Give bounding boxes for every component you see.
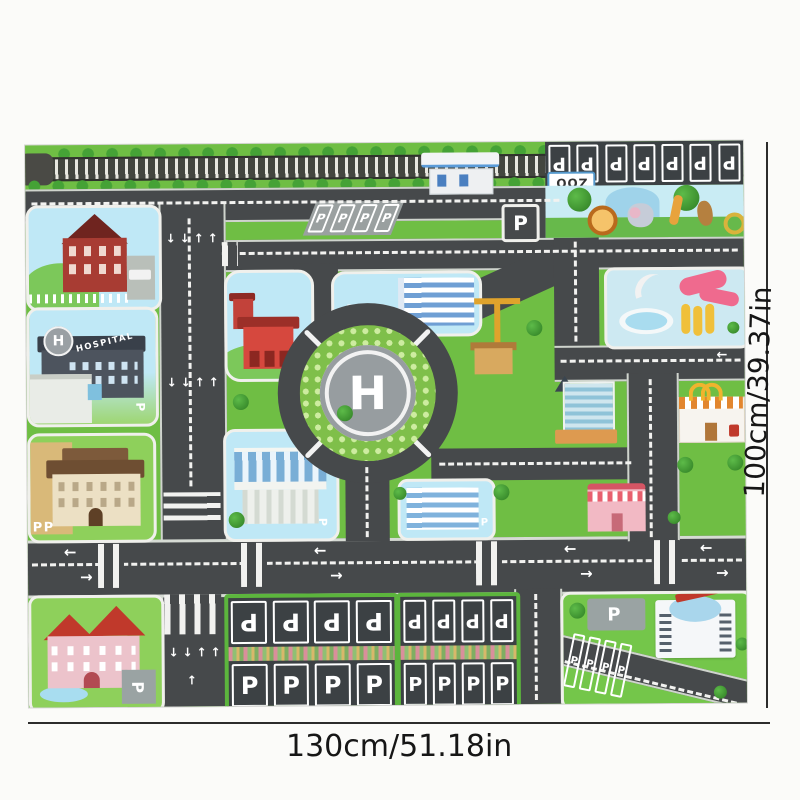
parking-stall: P xyxy=(314,600,350,643)
hospital-door xyxy=(88,384,102,400)
width-dimension-line xyxy=(28,722,770,724)
slide-yellow xyxy=(693,306,702,336)
stall-letter: P xyxy=(282,608,300,636)
parking-stall: P xyxy=(491,662,514,705)
center-dash xyxy=(365,467,368,537)
flower-hedge xyxy=(229,646,395,661)
stall-letter: P xyxy=(324,671,342,699)
stall-letter: P xyxy=(365,671,383,699)
pond xyxy=(40,686,88,702)
lane-arrow: ← xyxy=(700,541,713,556)
shop-sign xyxy=(729,425,739,437)
tree xyxy=(337,405,353,421)
parking-stall: P xyxy=(461,599,484,642)
parking-stall: P xyxy=(462,662,485,705)
truck xyxy=(129,270,151,280)
parking-marking: P xyxy=(133,402,147,411)
lane-arrow: → xyxy=(80,570,93,585)
helipad: H xyxy=(319,345,416,442)
lane-arrow: ↑ xyxy=(187,674,197,686)
gas-station xyxy=(421,152,499,197)
cafe-door xyxy=(612,513,623,531)
parking-stall: P xyxy=(689,144,712,182)
stall-row: P P P P xyxy=(400,596,516,646)
windows xyxy=(52,646,136,656)
crosswalk xyxy=(241,543,267,587)
stall-letter: P xyxy=(495,610,509,632)
lane-arrow: ↓ xyxy=(181,376,191,388)
stall-letter: P xyxy=(437,673,451,695)
tree xyxy=(233,394,249,410)
lane-arrow: ↑ xyxy=(195,376,205,388)
tree xyxy=(393,487,406,500)
lane-arrow: ↓ xyxy=(167,376,177,388)
canopy xyxy=(421,152,499,168)
parking-stall: P xyxy=(356,600,392,643)
hospital-roof-helipad: H xyxy=(43,326,73,356)
stall-row: P P P P xyxy=(229,660,395,708)
parking-stall: P xyxy=(231,601,267,644)
stall-letter: P xyxy=(585,658,594,670)
parking-stall: P xyxy=(432,600,455,643)
lane-arrow: → xyxy=(580,567,593,582)
stall-letter: P xyxy=(365,608,383,636)
crosswalk xyxy=(98,544,124,588)
tree xyxy=(569,603,585,619)
lane-arrow: ↓ xyxy=(183,646,193,658)
stall-letter: P xyxy=(466,673,480,695)
cafe-awning xyxy=(587,491,645,501)
hospital-helipad-letter: H xyxy=(52,333,64,349)
bay-door xyxy=(249,351,259,367)
parking-stall: P xyxy=(490,599,513,642)
helipad-letter: H xyxy=(348,366,387,420)
parking-stall: P xyxy=(633,144,656,182)
tree xyxy=(735,637,746,650)
parking-stall: P xyxy=(356,663,392,706)
stall-letter: P xyxy=(638,153,651,174)
parking-sign-letter: P xyxy=(513,211,528,235)
stall-letter: P xyxy=(616,664,625,676)
play-mat: H HOSPITAL P P P P P P xyxy=(25,141,747,708)
lane-arrow: ← xyxy=(64,545,77,560)
windows xyxy=(58,482,134,492)
stall-letter: P xyxy=(313,211,327,225)
school-door xyxy=(84,672,100,688)
fuel-pump xyxy=(437,175,446,187)
parking-stall: P xyxy=(605,144,628,182)
stall-letter: P xyxy=(282,671,300,699)
fuel-pump xyxy=(459,174,468,186)
site-building xyxy=(474,348,512,374)
crosswalk xyxy=(654,540,680,584)
tree xyxy=(526,320,542,336)
lawn-parking: P P P P xyxy=(561,631,635,701)
palm-tree xyxy=(727,322,739,334)
picket-fence xyxy=(29,294,129,304)
mansion-block: P P xyxy=(27,433,157,544)
slide-yellow xyxy=(681,304,690,334)
parking-lot-a: P P P P P P P P xyxy=(224,593,399,708)
stall-letter: P xyxy=(323,608,341,636)
stall-letter: P xyxy=(466,610,480,632)
lane-arrow: ↑ xyxy=(197,646,207,658)
stall-letter: P xyxy=(694,152,707,173)
parking-marking: P xyxy=(481,517,488,528)
lane-arrow: ↑ xyxy=(209,376,219,388)
parking-stall: P xyxy=(718,144,741,182)
tree xyxy=(493,484,509,500)
school-gable xyxy=(87,606,145,636)
lane-arrow: ↑ xyxy=(194,232,204,244)
road-main-horizontal xyxy=(28,535,746,598)
stall-letter: P xyxy=(609,153,622,174)
crosswalk xyxy=(164,594,221,634)
lane-arrow: → xyxy=(716,566,729,581)
parking-stall: P xyxy=(433,663,456,706)
dome-building-block: P P P P P xyxy=(560,590,747,707)
lane-arrow: ↑ xyxy=(208,232,218,244)
lane-arrow: ↓ xyxy=(180,232,190,244)
bay-door xyxy=(264,351,274,367)
crosswalk xyxy=(163,492,220,520)
lion-figure xyxy=(587,205,617,235)
school-block: P xyxy=(28,595,165,708)
stall-letter: P xyxy=(408,610,422,632)
stall-letter: P xyxy=(240,608,258,636)
tree xyxy=(567,188,591,212)
lane-arrow: ↑ xyxy=(211,646,221,658)
snake-figure xyxy=(724,212,746,234)
hospital-wing xyxy=(30,374,92,423)
golden-arches-icon xyxy=(701,383,723,401)
stall-letter: P xyxy=(241,671,259,699)
tree xyxy=(677,457,693,473)
parking-marking: P xyxy=(33,520,43,535)
glass-building-2-block: P xyxy=(397,478,495,541)
slide-pink xyxy=(698,286,740,308)
pillared-lower-floor xyxy=(242,489,318,524)
lane-arrow: ← xyxy=(716,349,727,362)
lane-arrow: ← xyxy=(564,542,577,557)
width-dimension-label: 130cm/51.18in xyxy=(286,729,512,764)
product-photo: H HOSPITAL P P P P P P xyxy=(0,0,800,800)
stall-letter: P xyxy=(666,152,679,173)
parking-marking: P xyxy=(44,520,54,535)
stall-letter: P xyxy=(408,673,422,695)
windows xyxy=(69,246,121,256)
stall-letter: P xyxy=(437,610,451,632)
parking-marking: P xyxy=(316,518,329,526)
stall-letter: P xyxy=(495,673,509,695)
lane-arrow: ← xyxy=(314,543,327,558)
parking-stall: P xyxy=(315,663,351,706)
lane-arrow: → xyxy=(330,568,343,583)
crosswalk xyxy=(476,541,502,585)
tree xyxy=(229,512,245,528)
parking-marking: P xyxy=(128,681,147,693)
tower-base xyxy=(555,429,617,443)
lane-arrow: ↓ xyxy=(166,232,176,244)
windows xyxy=(59,498,135,508)
parking-stall: P xyxy=(273,664,309,707)
parking-marking: P xyxy=(607,604,620,625)
tree xyxy=(668,511,681,524)
slanted-parking-lot: P P P P xyxy=(303,201,404,236)
road-bottom-central xyxy=(514,589,563,704)
construction-crane xyxy=(466,292,527,382)
mansion-door xyxy=(89,508,103,526)
lane-arrow: ↓ xyxy=(169,646,179,658)
cafe xyxy=(587,481,647,533)
water-park xyxy=(604,266,747,349)
parking-stall: P xyxy=(273,601,309,644)
parking-lot-b: P P P P P P P P xyxy=(396,592,521,707)
parking-sign: P xyxy=(501,204,539,242)
glass-building-2 xyxy=(406,487,478,530)
stall-letter: P xyxy=(601,661,610,673)
roundabout: H xyxy=(277,303,458,484)
stall-letter: P xyxy=(379,211,393,225)
stall-letter: P xyxy=(569,655,578,667)
stall-row: P P P P xyxy=(401,659,517,707)
windows xyxy=(69,264,121,274)
red-house-block xyxy=(25,205,162,312)
zoo-area xyxy=(545,184,743,237)
fast-food-shop xyxy=(679,384,745,446)
stall-row: P P P P xyxy=(228,597,394,647)
parking-stall: P xyxy=(403,600,426,643)
stall-letter: P xyxy=(335,211,349,225)
shop-door xyxy=(705,423,717,441)
flower-hedge xyxy=(401,645,517,660)
window-strip xyxy=(719,610,731,652)
parking-stall: P xyxy=(404,663,427,706)
tree xyxy=(714,686,727,699)
stall-letter: P xyxy=(357,211,371,225)
stall-letter: P xyxy=(722,152,735,173)
elephant-ear xyxy=(629,207,640,218)
window-strip xyxy=(659,610,671,652)
crosswalk xyxy=(222,242,238,266)
skyscraper xyxy=(547,381,625,446)
hospital-block: H HOSPITAL P xyxy=(26,307,159,428)
parking-stall: P xyxy=(661,144,684,182)
windows xyxy=(70,362,138,370)
parking-stall: P xyxy=(373,204,400,232)
parking-stall: P xyxy=(232,664,268,707)
slide-yellow xyxy=(705,304,714,334)
height-dimension-label: 100cm/39.37in xyxy=(738,286,778,498)
